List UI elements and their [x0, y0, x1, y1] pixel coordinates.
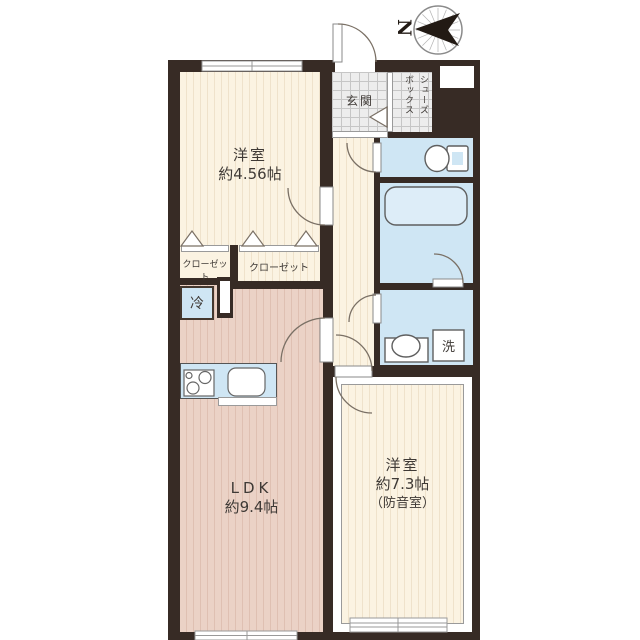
north-arrow-icon: [415, 13, 460, 46]
washing-machine-label: 洗: [433, 330, 464, 361]
floor-plan: 冷: [0, 0, 640, 640]
entrance-door-leaf: [333, 24, 342, 62]
entrance-threshold: [332, 131, 388, 138]
room-size: 約9.4帖: [180, 498, 323, 517]
refrigerator-label: 冷: [190, 293, 204, 313]
compass-rose-icon: [414, 6, 462, 54]
room-size: 約4.56帖: [180, 165, 320, 184]
ldk-floor: [180, 285, 323, 632]
room-size: 約7.3帖: [341, 475, 464, 494]
shoe-box-label: シューズ ボックス: [398, 75, 430, 131]
compass-north-label: N: [387, 19, 415, 39]
closet-right-label: クローゼット: [238, 259, 320, 274]
room-name: 洋室: [341, 456, 464, 475]
kitchen-counter-front-edge: [218, 397, 277, 406]
room-name: 洋室: [180, 146, 320, 165]
closet-right-bottom-wall: [233, 281, 323, 289]
entrance-door-swing: [338, 24, 376, 62]
room-note: （防音室）: [341, 494, 464, 513]
closet-left-door-line: [181, 245, 229, 252]
hallway-floor: [333, 138, 374, 366]
closet-left-label: クローゼット: [179, 257, 231, 283]
toilet-room-floor: [380, 138, 473, 177]
kitchen-wall-stub-opening: [220, 281, 230, 313]
western-room-1-label: 洋室 約4.56帖: [180, 146, 320, 184]
bathroom-floor: [380, 183, 473, 283]
refrigerator-box: 冷: [180, 286, 214, 320]
room-name: LDK: [180, 479, 323, 498]
closet-right-door-line: [239, 245, 319, 252]
meter-box-niche: [440, 66, 474, 88]
kitchen-counter: [180, 363, 277, 399]
entrance-label: 玄関: [332, 92, 388, 109]
ldk-label: LDK 約9.4帖: [180, 479, 323, 517]
western-room-2-label: 洋室 約7.3帖 （防音室）: [341, 456, 464, 513]
entrance-door-opening: [335, 60, 375, 72]
